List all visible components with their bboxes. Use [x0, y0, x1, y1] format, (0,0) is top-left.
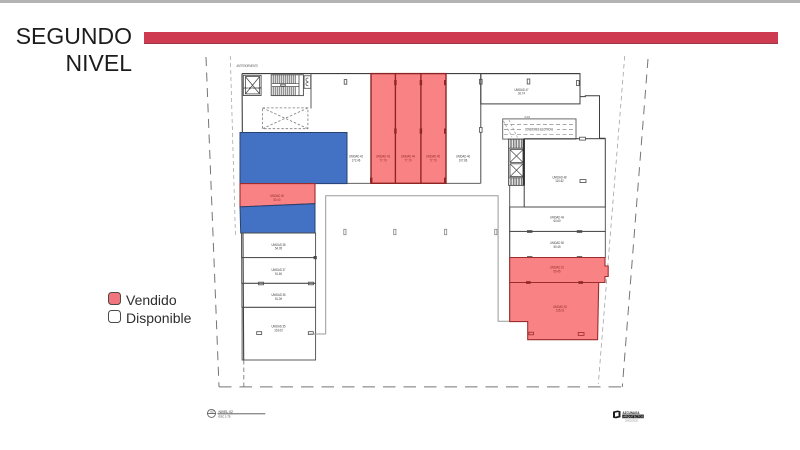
svg-text:77.70: 77.70	[430, 158, 437, 162]
svg-text:NIVEL 02: NIVEL 02	[219, 410, 234, 414]
svg-text:92.74: 92.74	[518, 92, 525, 96]
svg-text:51.09: 51.09	[275, 297, 282, 301]
svg-text:135.31: 135.31	[556, 309, 565, 313]
svg-text:ANTERIORMENTE: ANTERIORMENTE	[237, 64, 259, 68]
svg-text:64.60: 64.60	[554, 219, 561, 223]
svg-text:172.46: 172.46	[352, 158, 361, 162]
svg-text:110.62: 110.62	[555, 179, 564, 183]
svg-text:ASCENSORES: ASCENSORES	[243, 86, 261, 90]
svg-text:51.60: 51.60	[275, 272, 282, 276]
svg-text:50.40: 50.40	[274, 198, 281, 202]
svg-text:77.70: 77.70	[380, 158, 387, 162]
svg-text:107.86: 107.86	[459, 158, 468, 162]
svg-text:ESC 1:75: ESC 1:75	[219, 415, 231, 419]
svg-text:103.00: 103.00	[274, 328, 283, 332]
svg-text:02: 02	[210, 409, 214, 413]
svg-text:CONEXIONES ELECTRICAS: CONEXIONES ELECTRICAS	[525, 128, 554, 132]
svg-text:ARQUITECTOS: ARQUITECTOS	[623, 414, 643, 418]
svg-text:25/02/2020: 25/02/2020	[625, 419, 639, 423]
svg-text:59.45: 59.45	[554, 269, 561, 273]
svg-text:54.05: 54.05	[275, 247, 282, 251]
svg-text:59.45: 59.45	[554, 245, 561, 249]
svg-text:4.03: 4.03	[524, 115, 530, 119]
svg-text:77.70: 77.70	[405, 158, 412, 162]
